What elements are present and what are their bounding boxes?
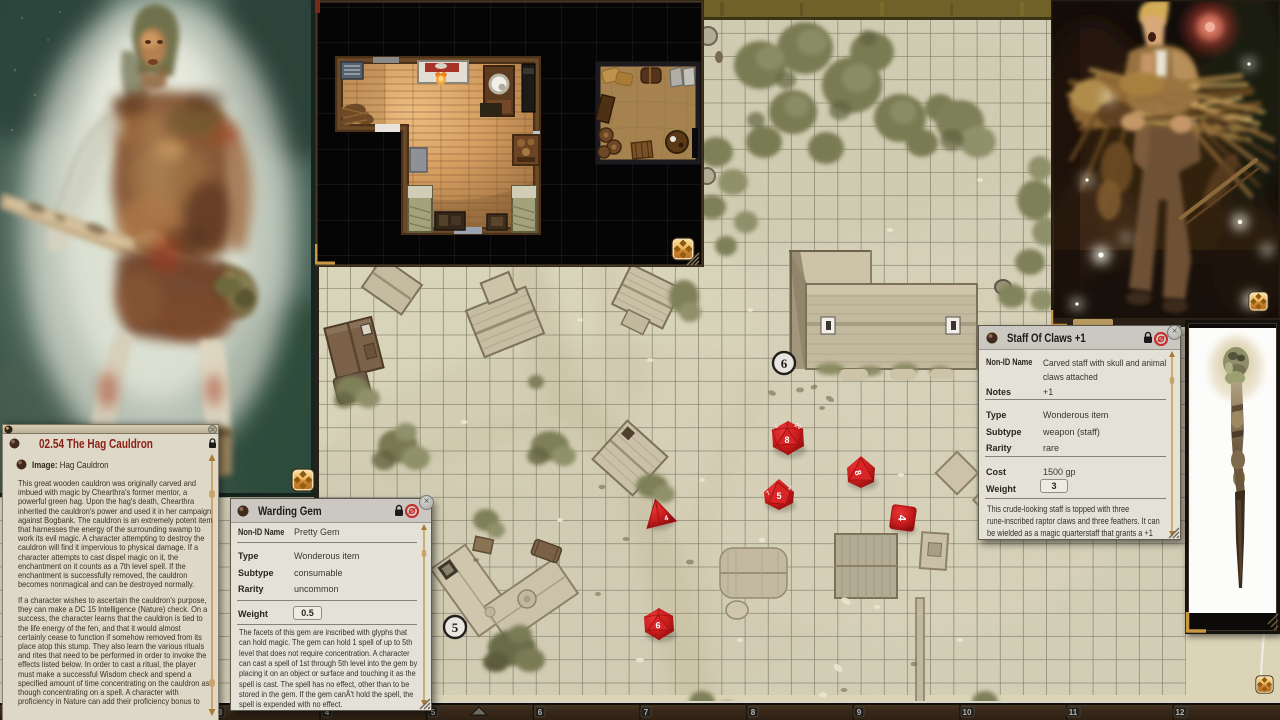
svg-text:8: 8 [784,435,789,445]
svg-text:5: 5 [452,620,459,635]
svg-text:12: 12 [1176,708,1185,717]
svg-text:7: 7 [644,708,649,717]
svg-text:11: 11 [1069,708,1078,717]
svg-text:10: 10 [963,708,972,717]
svg-text:6: 6 [538,708,543,717]
svg-text:5: 5 [776,491,781,501]
svg-text:8: 8 [751,708,756,717]
svg-text:9: 9 [857,708,862,717]
svg-text:6: 6 [655,621,660,631]
svg-text:6: 6 [781,356,788,371]
